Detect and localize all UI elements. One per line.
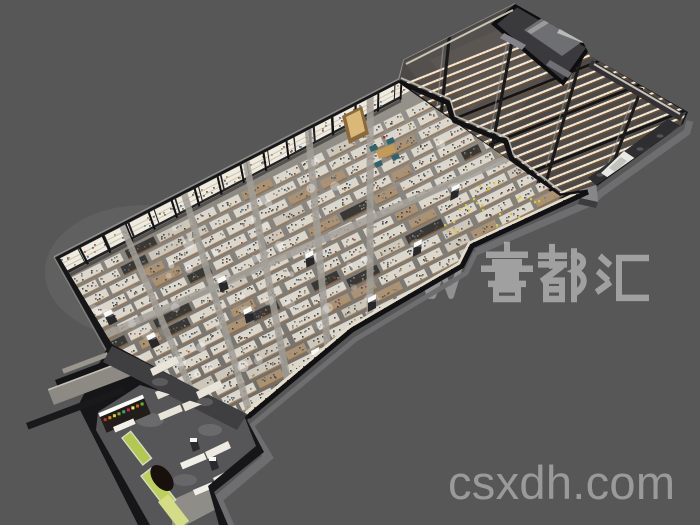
svg-text:csxdh.com: csxdh.com [448,456,675,509]
